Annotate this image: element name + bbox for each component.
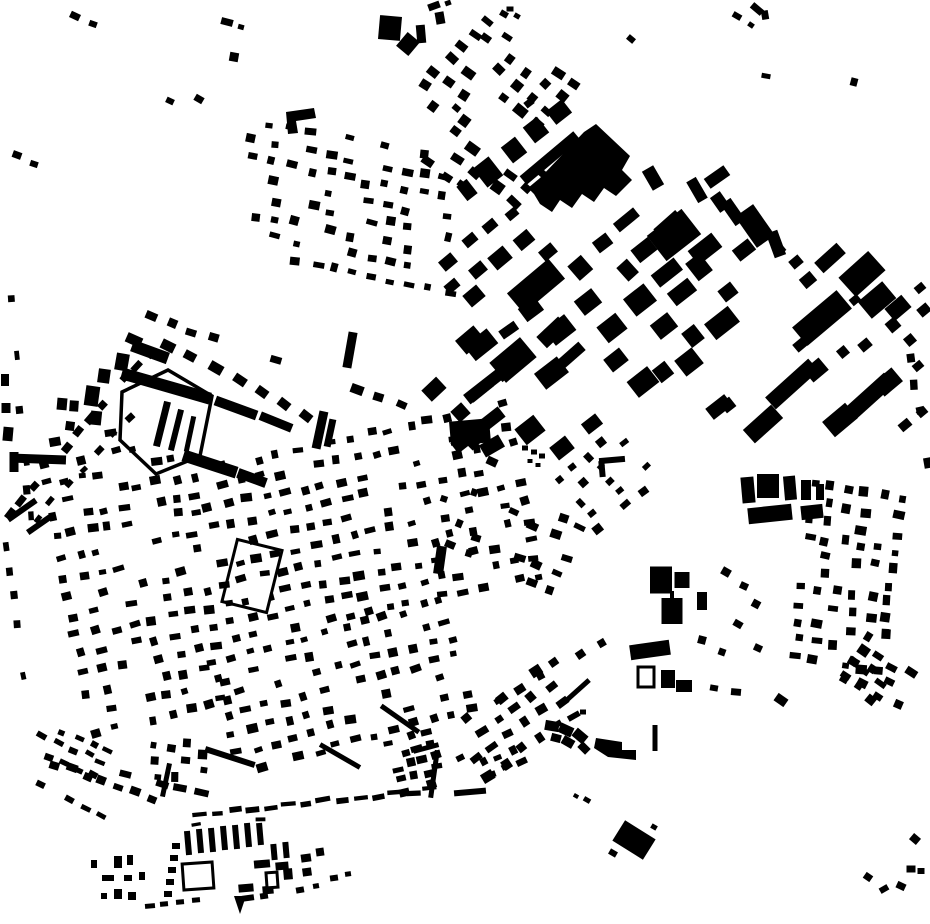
building — [225, 600, 233, 607]
building — [326, 150, 338, 160]
building — [156, 496, 166, 507]
building — [251, 213, 260, 222]
building — [151, 457, 163, 466]
building — [3, 542, 10, 552]
building — [118, 482, 129, 491]
building — [437, 571, 445, 579]
building — [473, 444, 481, 453]
building — [344, 714, 356, 724]
building — [324, 190, 331, 197]
building — [387, 603, 395, 610]
building — [821, 569, 830, 578]
building — [883, 595, 891, 606]
building — [313, 460, 324, 468]
building — [226, 519, 235, 529]
building — [846, 627, 856, 635]
building — [420, 168, 431, 178]
building — [306, 522, 315, 531]
building — [825, 480, 834, 490]
building — [65, 421, 75, 431]
building — [889, 563, 898, 574]
building — [265, 122, 273, 128]
building — [403, 223, 412, 231]
building — [448, 436, 456, 443]
building — [401, 600, 409, 607]
building — [416, 25, 427, 44]
building — [84, 385, 101, 407]
building — [403, 262, 411, 269]
building — [345, 232, 354, 242]
building — [793, 619, 802, 628]
building — [851, 558, 861, 568]
building — [452, 573, 464, 581]
building — [304, 127, 316, 135]
building — [170, 855, 178, 861]
building — [304, 652, 314, 662]
building — [650, 567, 672, 594]
building — [697, 592, 707, 610]
building — [168, 867, 176, 873]
building — [186, 703, 197, 713]
building — [210, 642, 222, 651]
building — [858, 486, 868, 497]
building — [260, 892, 269, 899]
building — [290, 257, 300, 266]
building — [885, 583, 892, 592]
building — [531, 450, 537, 455]
building — [806, 654, 818, 664]
building — [13, 620, 20, 628]
building — [910, 379, 918, 389]
building — [97, 368, 111, 384]
building — [811, 637, 822, 644]
building — [300, 853, 311, 862]
building — [6, 567, 13, 576]
building — [848, 590, 855, 600]
building — [408, 421, 416, 430]
building — [127, 855, 133, 865]
building — [892, 550, 899, 556]
building — [918, 868, 925, 874]
building — [450, 650, 457, 657]
building — [271, 141, 278, 148]
building — [319, 580, 327, 589]
building — [225, 617, 234, 625]
building — [102, 875, 114, 881]
building — [443, 213, 452, 220]
building — [332, 455, 340, 465]
building — [102, 521, 110, 530]
building — [346, 436, 354, 444]
building — [384, 507, 393, 516]
building — [166, 879, 174, 885]
building — [178, 670, 188, 680]
building — [193, 544, 202, 552]
building — [675, 572, 690, 588]
building — [653, 725, 658, 751]
building — [283, 868, 293, 880]
building — [69, 400, 79, 412]
building — [229, 52, 239, 62]
building — [139, 872, 145, 880]
building — [313, 883, 320, 889]
building — [387, 790, 400, 795]
building — [881, 629, 891, 640]
building — [192, 897, 200, 903]
building — [166, 455, 174, 463]
building — [856, 542, 865, 551]
building — [795, 634, 803, 642]
building — [114, 856, 122, 868]
building — [826, 498, 834, 507]
building — [8, 295, 15, 302]
building — [240, 493, 252, 503]
building — [150, 756, 158, 765]
building — [501, 422, 511, 431]
building — [54, 533, 62, 540]
building — [731, 688, 742, 696]
building — [437, 591, 448, 598]
building — [536, 463, 541, 467]
building — [373, 548, 381, 554]
building — [161, 690, 171, 699]
building — [386, 216, 396, 226]
building — [866, 613, 877, 623]
building — [424, 283, 431, 291]
building — [661, 670, 675, 688]
building — [828, 605, 839, 612]
building — [812, 480, 820, 487]
building — [146, 616, 157, 626]
building — [868, 591, 879, 602]
building — [260, 570, 270, 577]
building — [198, 749, 208, 759]
building — [191, 625, 200, 633]
building — [79, 571, 89, 580]
building — [676, 680, 692, 692]
building — [399, 482, 407, 490]
building — [2, 403, 11, 413]
building — [407, 790, 421, 796]
building — [539, 454, 545, 459]
building — [256, 817, 266, 821]
building — [200, 767, 208, 774]
building — [345, 871, 352, 877]
building — [183, 738, 191, 747]
building — [150, 742, 157, 749]
building — [250, 553, 263, 563]
building — [271, 198, 282, 208]
building — [438, 477, 447, 484]
building — [79, 473, 86, 479]
building — [378, 569, 386, 576]
building — [212, 811, 223, 816]
building — [789, 652, 801, 659]
building — [81, 690, 90, 699]
building — [28, 511, 34, 520]
building — [149, 716, 157, 725]
building — [183, 587, 193, 596]
building — [892, 533, 902, 540]
building — [322, 519, 332, 527]
building — [489, 544, 501, 554]
building — [842, 535, 850, 545]
building — [219, 581, 230, 589]
building — [164, 891, 172, 897]
building — [10, 591, 18, 600]
building — [873, 543, 881, 550]
building — [370, 734, 377, 741]
building — [828, 640, 837, 650]
building — [330, 874, 339, 881]
building — [325, 595, 335, 604]
building — [823, 516, 831, 526]
building — [360, 180, 370, 190]
building — [314, 560, 321, 568]
building — [382, 236, 392, 245]
building — [339, 576, 350, 585]
building — [507, 7, 514, 12]
building — [407, 538, 418, 547]
building — [173, 495, 181, 503]
building — [638, 667, 654, 687]
building — [441, 514, 451, 522]
building — [280, 699, 291, 708]
building — [160, 901, 168, 907]
building — [203, 605, 215, 615]
building — [56, 398, 67, 411]
building — [176, 899, 184, 905]
building — [844, 485, 854, 494]
building — [796, 583, 805, 589]
building — [381, 689, 392, 699]
building — [391, 562, 402, 571]
building — [145, 903, 155, 909]
building — [406, 757, 416, 767]
building — [87, 523, 99, 532]
building — [522, 446, 528, 451]
building — [302, 867, 312, 876]
building — [315, 847, 324, 856]
building — [238, 883, 254, 892]
building — [367, 427, 377, 436]
building — [740, 476, 755, 503]
building — [380, 179, 388, 187]
building — [757, 474, 779, 498]
building — [172, 531, 180, 537]
building — [124, 875, 132, 881]
building — [1, 374, 9, 386]
building — [247, 516, 257, 525]
building — [354, 452, 363, 460]
building — [58, 575, 67, 584]
map-background — [0, 0, 930, 924]
building — [805, 515, 813, 524]
building — [528, 459, 533, 463]
building — [2, 427, 13, 442]
building — [403, 245, 412, 255]
building — [128, 892, 136, 900]
building — [101, 893, 107, 899]
building — [266, 872, 278, 888]
building — [15, 406, 23, 414]
building — [793, 603, 803, 609]
building — [408, 644, 418, 654]
building — [907, 866, 916, 873]
figure-ground-map — [0, 0, 930, 924]
building — [906, 353, 915, 363]
building — [172, 843, 180, 849]
building — [254, 859, 271, 868]
building — [447, 711, 455, 719]
building — [801, 480, 811, 500]
building — [163, 593, 172, 601]
building — [580, 710, 586, 715]
building — [209, 624, 218, 632]
building — [92, 471, 103, 479]
building — [14, 351, 20, 361]
building — [457, 468, 466, 478]
building — [437, 191, 446, 200]
building — [409, 770, 418, 779]
building — [91, 860, 97, 868]
building — [343, 623, 351, 632]
building — [421, 415, 433, 424]
building — [384, 521, 394, 531]
building — [171, 772, 178, 782]
building — [83, 508, 93, 516]
building — [841, 503, 852, 514]
building — [880, 612, 891, 623]
building — [174, 508, 183, 517]
map-canvas — [0, 0, 930, 924]
building — [184, 606, 196, 615]
building — [167, 744, 177, 753]
building — [241, 598, 249, 606]
building — [117, 660, 127, 669]
building — [177, 651, 186, 658]
building — [833, 585, 843, 595]
building — [162, 577, 170, 584]
building — [114, 889, 122, 899]
building — [849, 607, 857, 616]
building — [378, 15, 402, 41]
building — [182, 862, 214, 890]
building — [352, 570, 365, 581]
building — [10, 452, 19, 472]
building — [415, 563, 423, 570]
building — [662, 598, 683, 624]
building — [327, 167, 336, 175]
building — [181, 756, 191, 764]
building — [387, 647, 398, 658]
building — [813, 586, 822, 595]
building — [860, 508, 871, 518]
building — [854, 525, 867, 536]
building — [290, 525, 300, 533]
building — [368, 255, 377, 263]
building — [783, 476, 797, 501]
building — [290, 623, 301, 633]
building — [23, 485, 31, 495]
building — [899, 495, 907, 503]
